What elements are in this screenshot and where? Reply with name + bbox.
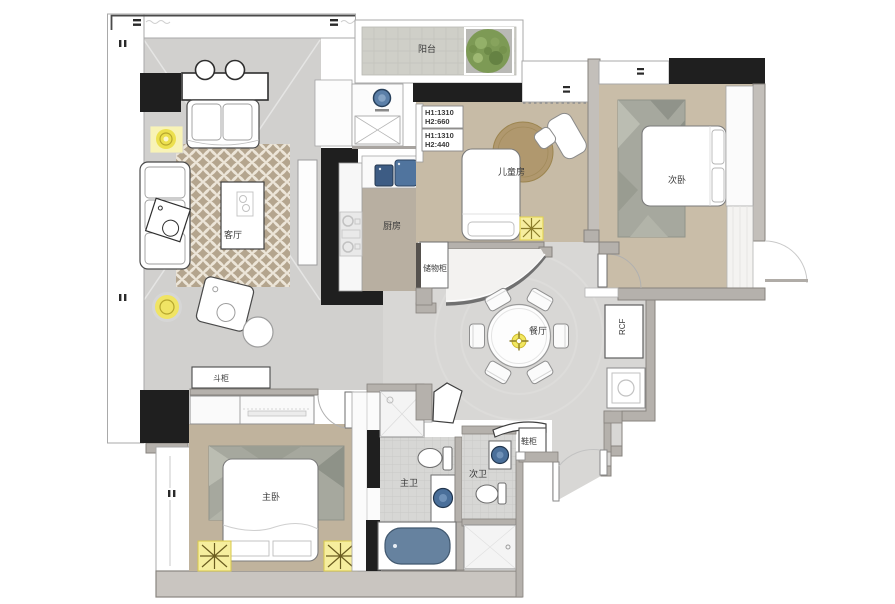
svg-text:主卫: 主卫 xyxy=(400,477,418,488)
svg-text:儿童房: 儿童房 xyxy=(498,166,525,177)
svg-text:客厅: 客厅 xyxy=(224,229,242,240)
svg-text:阳台: 阳台 xyxy=(418,43,436,54)
svg-text:H2:440: H2:440 xyxy=(425,140,450,149)
svg-text:餐厅: 餐厅 xyxy=(529,325,547,336)
svg-text:H2:660: H2:660 xyxy=(425,117,450,126)
svg-text:厨房: 厨房 xyxy=(383,220,401,231)
svg-text:主卧: 主卧 xyxy=(262,491,280,502)
svg-text:储物柜: 储物柜 xyxy=(423,263,447,273)
svg-text:鞋柜: 鞋柜 xyxy=(521,436,537,446)
svg-text:次卧: 次卧 xyxy=(668,174,686,185)
svg-text:RCF: RCF xyxy=(618,318,627,335)
svg-text:H1:1310: H1:1310 xyxy=(425,131,454,140)
svg-text:次卫: 次卫 xyxy=(469,468,487,479)
svg-text:H1:1310: H1:1310 xyxy=(425,108,454,117)
svg-text:斗柜: 斗柜 xyxy=(213,373,229,383)
